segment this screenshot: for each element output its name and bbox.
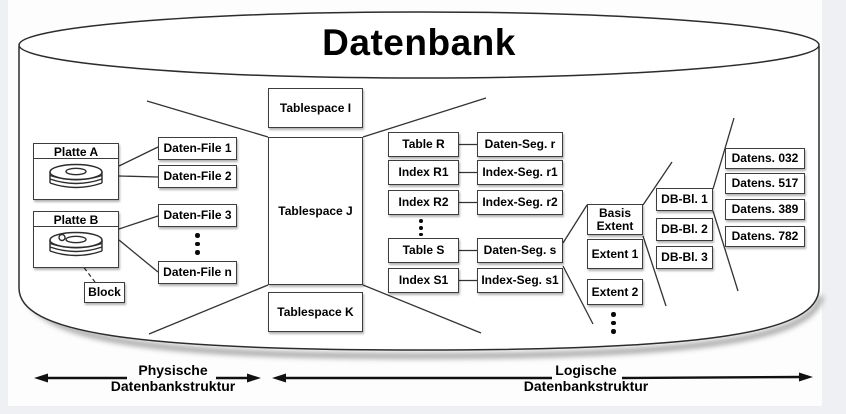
physical-structure-label: Physische Datenbankstruktur [103,362,243,394]
tablespace-j-box: Tablespace J [268,137,363,285]
daten-file-1-box: Daten-File 1 [158,137,237,160]
physical-structure-line2: Datenbankstruktur [103,378,243,394]
daten-seg-s-box: Daten-Seg. s [477,238,563,263]
logical-structure-line2: Datenbankstruktur [516,378,656,394]
table-r-box: Table R [388,132,459,157]
logical-structure-line1: Logische [516,362,656,378]
db-block-3-box: DB-Bl. 3 [656,246,713,269]
db-block-2-box: DB-Bl. 2 [656,218,713,241]
daten-file-2-box: Daten-File 2 [158,165,237,188]
disk-icon [34,227,118,267]
disk-platte-a: Platte A [33,143,119,200]
daten-seg-r-box: Daten-Seg. r [477,132,563,157]
table-s-box: Table S [388,238,459,263]
record-389-box: Datens. 389 [725,199,805,220]
extent-2-box: Extent 2 [587,279,643,305]
index-r1-box: Index R1 [388,160,459,185]
extent-1-box: Extent 1 [587,239,643,269]
tablespace-k-box: Tablespace K [268,292,363,332]
index-seg-r2-box: Index-Seg. r2 [477,190,563,215]
logical-structure-label: Logische Datenbankstruktur [516,362,656,394]
tablespace-i-box: Tablespace I [268,88,363,128]
index-seg-r1-box: Index-Seg. r1 [477,160,563,185]
block-box: Block [84,282,125,303]
record-517-box: Datens. 517 [725,173,805,194]
index-r2-box: Index R2 [388,190,459,215]
disk-b-label: Platte B [34,212,118,227]
basis-extent-box: Basis Extent [587,204,643,235]
table-ellipsis-dots [419,218,423,238]
db-block-1-box: DB-Bl. 1 [656,188,713,211]
file-ellipsis-dots [195,231,200,257]
diagram-stage: Datenbank Platte A Platte B [0,0,846,414]
disk-a-label: Platte A [34,144,118,159]
disk-icon [34,159,118,199]
daten-file-n-box: Daten-File n [158,261,237,284]
daten-file-3-box: Daten-File 3 [158,204,237,227]
database-title: Datenbank [322,22,516,64]
record-782-box: Datens. 782 [725,226,805,247]
extent-ellipsis-dots [611,310,616,336]
disk-platte-b: Platte B [33,211,119,268]
physical-structure-line1: Physische [103,362,243,378]
index-s1-box: Index S1 [388,268,459,293]
index-seg-s1-box: Index-Seg. s1 [477,268,563,293]
block-marker-dot [59,235,65,241]
record-032-box: Datens. 032 [725,148,805,169]
